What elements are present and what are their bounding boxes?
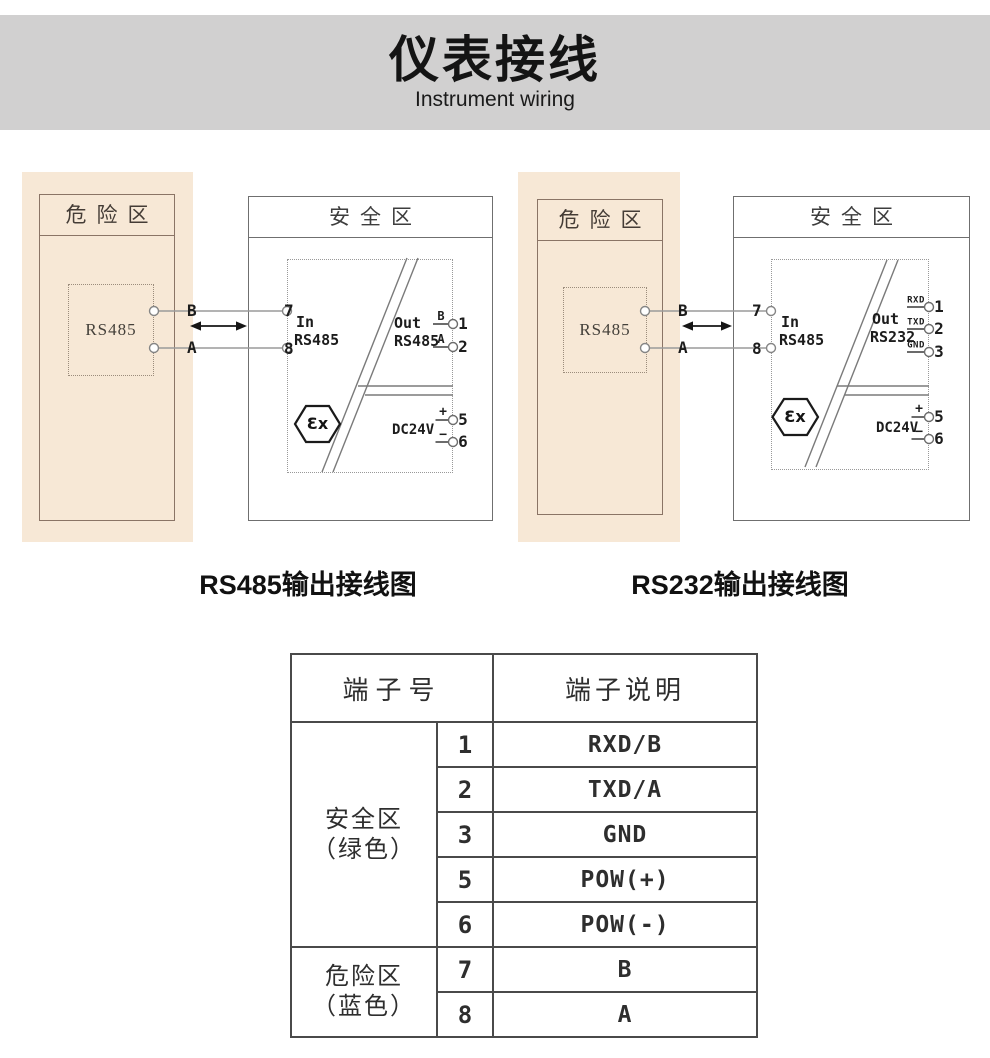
terminal-number-1: 1 — [934, 299, 944, 315]
isolator-dotted-box-rs232 — [771, 259, 929, 470]
power-minus-sign: − — [439, 429, 447, 442]
header-terminal-no: 端子号 — [291, 654, 493, 722]
terminal-table: 端子号 端子说明 安全区 （绿色） 1 RXD/B 2 TXD/A 3 GND … — [290, 653, 758, 1038]
page-header: 仪表接线 Instrument wiring — [0, 15, 990, 130]
terminal-no-cell: 6 — [437, 902, 493, 947]
out-port-label-line1: Out — [394, 316, 421, 331]
arrowhead-right — [721, 321, 732, 330]
arrowhead-left — [682, 321, 693, 330]
in-port-label-line2: RS485 — [779, 333, 824, 348]
table-row: 安全区 （绿色） 1 RXD/B — [291, 722, 757, 767]
device-label: RS485 — [85, 320, 136, 340]
terminal-desc-cell: GND — [493, 812, 757, 857]
out-port-label-line2: RS485 — [394, 334, 439, 349]
header-terminal-desc: 端子说明 — [493, 654, 757, 722]
page-title: 仪表接线 — [389, 35, 601, 85]
terminal-number-1: 1 — [458, 316, 468, 332]
terminal-desc-cell: POW(-) — [493, 902, 757, 947]
terminal-number-6: 6 — [934, 431, 944, 447]
device-box-rs485: RS485 — [68, 284, 154, 376]
terminal-number-8: 8 — [752, 341, 762, 357]
page-subtitle: Instrument wiring — [415, 89, 575, 110]
terminal-number-5: 5 — [934, 409, 944, 425]
terminal-no-cell: 5 — [437, 857, 493, 902]
page: 仪表接线 Instrument wiring 危险区 RS485 安全区 危险区… — [0, 0, 990, 1058]
hazard-zone-header: 危险区 — [40, 195, 174, 236]
power-label: DC24V — [392, 423, 434, 437]
zone-name: 安全区 — [292, 805, 436, 835]
safe-zone-header: 安全区 — [249, 197, 492, 238]
wire-label-a: A — [678, 340, 688, 356]
hazard-zone-title: 危险区 — [549, 210, 652, 231]
wire-label-b: B — [187, 303, 197, 319]
terminal-number-5: 5 — [458, 412, 468, 428]
wire-label-b: B — [678, 303, 688, 319]
terminal-no-cell: 2 — [437, 767, 493, 812]
zone-cell-safe: 安全区 （绿色） — [291, 722, 437, 947]
power-plus-sign: + — [915, 403, 923, 416]
ex-atex-mark: Ɛx — [784, 409, 805, 425]
terminal-number-8: 8 — [284, 341, 294, 357]
terminal-desc-cell: A — [493, 992, 757, 1037]
terminal-no-cell: 3 — [437, 812, 493, 857]
power-label: DC24V — [876, 421, 918, 435]
zone-color-note: （绿色） — [292, 835, 436, 865]
out-signal-a: A — [437, 333, 444, 345]
out-port-label-line1: Out — [872, 312, 899, 327]
terminal-desc-cell: RXD/B — [493, 722, 757, 767]
out-signal-b: B — [437, 310, 444, 322]
in-port-label-line1: In — [296, 315, 314, 330]
zone-name: 危险区 — [292, 962, 436, 992]
arrowhead-right — [236, 321, 247, 330]
diagram-caption-rs232: RS232输出接线图 — [631, 572, 849, 599]
terminal-number-2: 2 — [934, 321, 944, 337]
in-port-label-line2: RS485 — [294, 333, 339, 348]
out-signal-txd: TXD — [907, 319, 925, 328]
terminal-desc-cell: TXD/A — [493, 767, 757, 812]
table-row: 危险区 （蓝色） 7 B — [291, 947, 757, 992]
terminal-number-3: 3 — [934, 344, 944, 360]
safe-zone-header: 安全区 — [734, 197, 969, 238]
zone-color-note: （蓝色） — [292, 992, 436, 1022]
hazard-zone-title: 危险区 — [56, 205, 159, 226]
power-plus-sign: + — [439, 406, 447, 419]
hazard-zone-header: 危险区 — [538, 200, 662, 241]
ex-atex-mark: Ɛx — [307, 416, 328, 432]
terminal-number-6: 6 — [458, 434, 468, 450]
zone-cell-hazard: 危险区 （蓝色） — [291, 947, 437, 1037]
safe-zone-title: 安全区 — [319, 207, 422, 228]
terminal-number-2: 2 — [458, 339, 468, 355]
out-signal-gnd: GND — [907, 342, 925, 351]
power-minus-sign: − — [915, 426, 923, 439]
wire-label-a: A — [187, 340, 197, 356]
terminal-no-cell: 1 — [437, 722, 493, 767]
device-label: RS485 — [579, 320, 630, 340]
table-header-row: 端子号 端子说明 — [291, 654, 757, 722]
terminal-no-cell: 7 — [437, 947, 493, 992]
terminal-desc-cell: POW(+) — [493, 857, 757, 902]
out-signal-rxd: RXD — [907, 297, 925, 306]
terminal-desc-cell: B — [493, 947, 757, 992]
terminal-number-7: 7 — [752, 303, 762, 319]
terminal-no-cell: 8 — [437, 992, 493, 1037]
safe-zone-title: 安全区 — [800, 207, 903, 228]
in-port-label-line1: In — [781, 315, 799, 330]
diagram-caption-rs485: RS485输出接线图 — [199, 572, 417, 599]
isolator-dotted-box-rs485 — [287, 259, 453, 473]
terminal-number-7: 7 — [284, 303, 294, 319]
device-box-rs232: RS485 — [563, 287, 647, 373]
